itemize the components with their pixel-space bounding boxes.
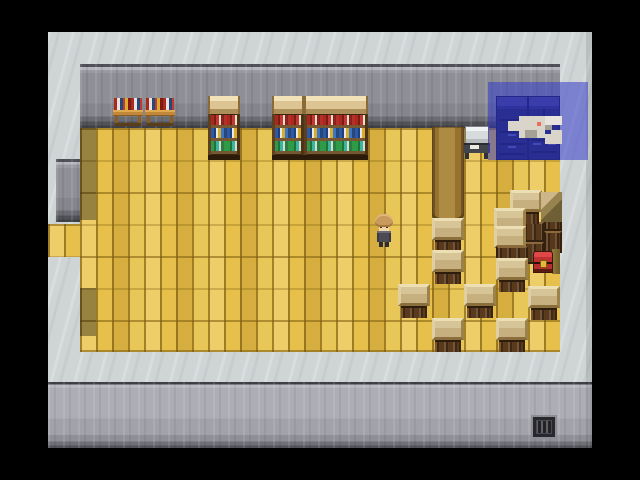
crate-top xyxy=(494,226,526,248)
wooden-crate xyxy=(432,318,464,352)
wooden-crate xyxy=(432,250,464,284)
bookshelf xyxy=(304,96,368,160)
bookshelf-top xyxy=(304,96,368,114)
book-row xyxy=(307,115,365,128)
bookshelf-base xyxy=(272,155,304,160)
book-row xyxy=(275,115,301,128)
player-marker xyxy=(537,122,541,126)
book-cart xyxy=(113,98,143,126)
crate-front xyxy=(435,272,461,284)
treasure-chest xyxy=(533,251,553,273)
crate-front xyxy=(467,306,493,318)
minimap-cell xyxy=(525,130,537,138)
crate-top xyxy=(496,258,528,280)
crate-corner xyxy=(541,192,562,222)
crate-front xyxy=(401,306,427,318)
minimap-cell xyxy=(545,125,552,130)
bookshelf-base xyxy=(208,155,240,160)
wooden-crate xyxy=(398,284,430,318)
crate-front xyxy=(435,340,461,352)
book-row xyxy=(275,141,301,154)
wall-shadow xyxy=(80,128,96,220)
player-hair xyxy=(375,214,393,227)
book-row xyxy=(307,141,365,154)
book-row xyxy=(211,115,237,128)
wall-shadow xyxy=(80,288,96,336)
bookshelf-top xyxy=(208,96,240,114)
bookshelf xyxy=(208,96,240,160)
wooden-crate xyxy=(464,284,496,318)
minimap-cell xyxy=(551,130,562,144)
bookshelf-body xyxy=(208,114,240,155)
bookshelf xyxy=(272,96,304,160)
book-row xyxy=(211,141,237,154)
cart-axle xyxy=(115,123,141,126)
wooden-crate xyxy=(496,318,528,352)
book-row xyxy=(275,128,301,141)
cart-axle xyxy=(147,123,173,126)
chest-side-panel xyxy=(552,249,560,274)
counter-top xyxy=(465,126,489,144)
counter-leg xyxy=(465,153,469,159)
wooden-crate xyxy=(432,218,464,252)
counter-paper xyxy=(470,145,479,149)
drain-grate xyxy=(533,417,555,437)
wooden-crate xyxy=(496,258,528,292)
crate-top xyxy=(464,284,496,306)
player-character xyxy=(374,214,394,248)
bookshelf-top xyxy=(272,96,304,114)
book-cart xyxy=(145,98,175,126)
alcove-wall xyxy=(56,159,80,222)
player-legs xyxy=(379,242,383,247)
cart-books xyxy=(146,98,174,110)
wood-floor xyxy=(80,128,560,352)
minimap-cell xyxy=(545,116,562,125)
game-viewport[interactable] xyxy=(48,32,592,448)
crate-top xyxy=(432,218,464,240)
minimap-cell xyxy=(508,121,519,131)
crate-top xyxy=(398,284,430,306)
bookshelf-body xyxy=(272,114,304,155)
crate-top xyxy=(528,286,560,308)
bookshelf-body xyxy=(304,114,368,155)
crate-front xyxy=(499,340,525,352)
crate-front xyxy=(531,308,557,320)
crate-top xyxy=(496,318,528,340)
minimap-cell xyxy=(545,134,551,144)
crate-top xyxy=(432,318,464,340)
long-table xyxy=(432,127,464,223)
floor-edge xyxy=(80,350,560,352)
game-window xyxy=(0,0,640,480)
player-body xyxy=(377,231,391,242)
wooden-crate xyxy=(528,286,560,320)
lower-wall xyxy=(48,382,592,448)
book-row xyxy=(211,128,237,141)
crate-top xyxy=(432,250,464,272)
chest-clasp xyxy=(540,260,547,268)
cart-books xyxy=(114,98,142,110)
book-row xyxy=(307,128,365,141)
sink-counter xyxy=(463,126,491,160)
crate-front xyxy=(499,280,525,292)
minimap xyxy=(507,114,563,146)
bookshelf-base xyxy=(304,155,368,160)
alcove-floor xyxy=(48,224,80,257)
